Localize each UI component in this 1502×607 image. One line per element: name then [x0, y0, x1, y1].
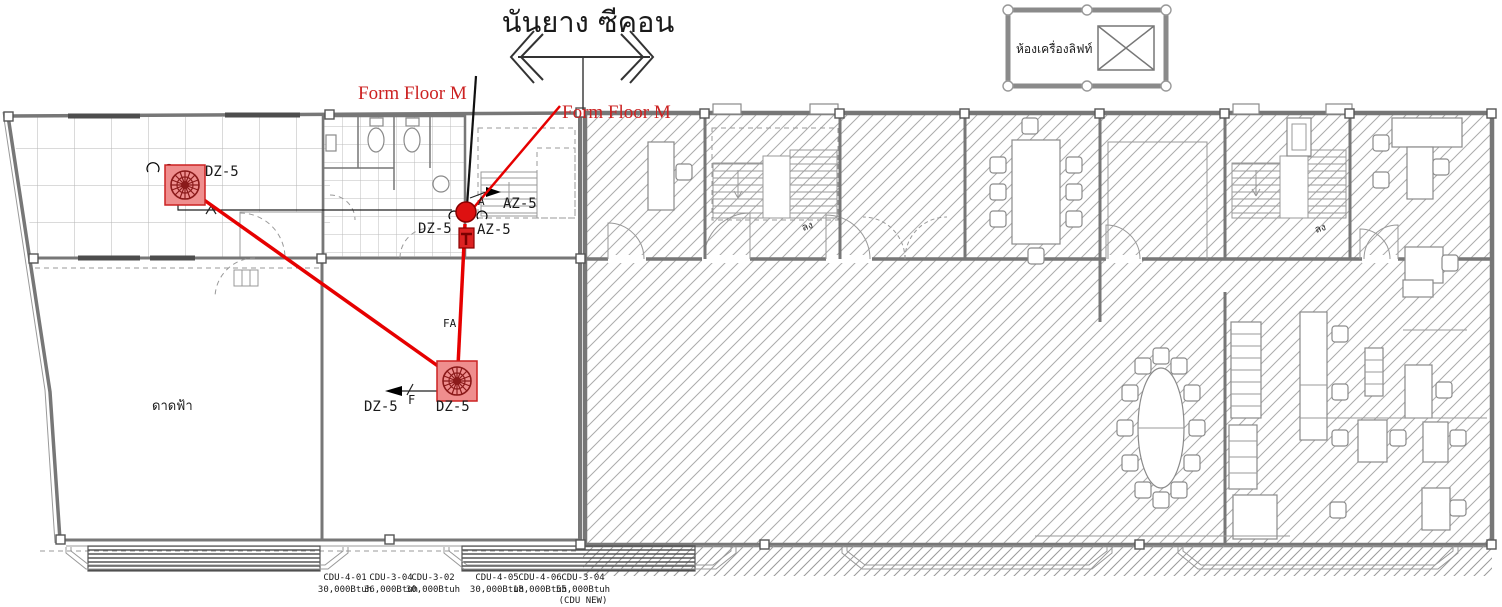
svg-text:CDU-3-04: CDU-3-04 [561, 573, 604, 583]
crossed-box-symbol [1098, 26, 1154, 70]
dz5-mid-label: DZ-5 [418, 221, 452, 237]
ceiling-fan-unit-1 [165, 165, 205, 205]
duct-fa-label: FA [443, 317, 457, 330]
fan1-label: DZ-5 [205, 164, 239, 180]
balcony-hatched [583, 546, 1492, 576]
toilet-2 [404, 128, 420, 152]
duct-arrow-f [385, 386, 402, 396]
floor-plan-drawing: ลง ลง [0, 0, 1502, 607]
ladder-symbol [234, 270, 258, 286]
leader-line-black [467, 76, 476, 206]
az-unit-box [459, 228, 474, 248]
terrace-label: ดาดฟ้า [152, 399, 193, 414]
drawing-title: นันยาง ซีคอน [502, 5, 675, 39]
az5-top-label: AZ-5 [503, 196, 537, 212]
svg-text:55,000Btuh: 55,000Btuh [556, 585, 610, 595]
ceiling-fan-unit-2 [437, 361, 477, 401]
cdu-item-3: CDU-3-02 30,000Btuh [406, 573, 460, 595]
fan2-label-right: DZ-5 [436, 399, 470, 415]
legend-box: ห้องเครื่องลิฟท์ [1003, 5, 1171, 91]
form-floor-label-1: Form Floor M [358, 83, 467, 104]
svg-text:CDU-4-06: CDU-4-06 [518, 573, 561, 583]
legend-label: ห้องเครื่องลิฟท์ [1016, 40, 1092, 56]
sink [433, 176, 449, 192]
svg-text:CDU-3-04: CDU-3-04 [369, 573, 412, 583]
duct-f-label: F [408, 393, 415, 407]
title-block: นันยาง ซีคอน [502, 5, 675, 110]
svg-text:CDU-4-01: CDU-4-01 [323, 573, 366, 583]
urinal [326, 135, 336, 151]
cdu-item-6: CDU-3-04 55,000Btuh (CDU NEW) [556, 573, 610, 606]
left-building: ดาดฟ้า [3, 112, 580, 545]
fan2-label-left: DZ-5 [364, 399, 398, 415]
louver-panel-2 [462, 546, 695, 571]
toilet-1 [368, 128, 384, 152]
right-building: ลง ลง [585, 104, 1492, 545]
svg-text:CDU-3-02: CDU-3-02 [411, 573, 454, 583]
cdu-schedule: CDU-4-01 30,000Btuh CDU-3-04 36,000Btuh … [318, 573, 610, 606]
az5-bottom-label: AZ-5 [477, 222, 511, 238]
form-floor-label-2: Form Floor M [562, 102, 671, 123]
svg-text:(CDU NEW): (CDU NEW) [559, 596, 608, 606]
louver-panel-1 [88, 546, 320, 571]
double-arrow-symbol [511, 31, 653, 110]
svg-text:CDU-4-05: CDU-4-05 [475, 573, 518, 583]
svg-text:30,000Btuh: 30,000Btuh [406, 585, 460, 595]
az-unit-round [456, 202, 476, 222]
duct-a-label: A [478, 195, 485, 208]
floor-plan-canvas: ลง ลง [0, 0, 1502, 607]
mid-wall-door-arc [215, 258, 255, 298]
